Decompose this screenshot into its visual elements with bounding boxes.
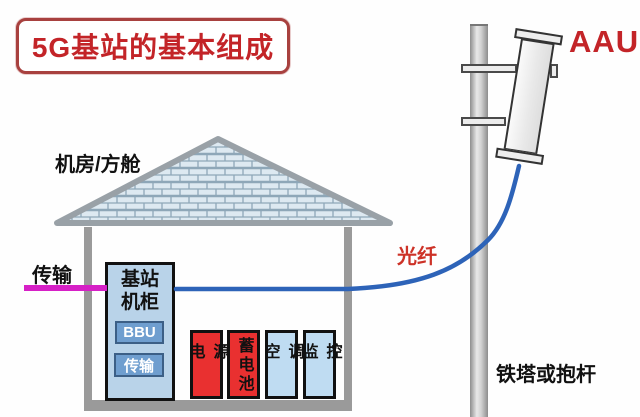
bbu-module: BBU: [115, 321, 164, 344]
power-label: 电源: [183, 333, 231, 396]
transmission-module: 传输: [114, 353, 164, 377]
air-conditioner-box: 空调: [265, 330, 298, 399]
monitoring-box: 监控: [303, 330, 336, 399]
aau-label: AAU: [569, 24, 639, 60]
battery-label: 蓄电池: [232, 333, 256, 396]
bbu-label: BBU: [123, 324, 156, 341]
house-wall-left: [84, 227, 92, 411]
aau-body: [503, 38, 554, 155]
cabinet-name: 基站机柜: [117, 268, 163, 314]
diagram-canvas: 基站机柜 BBU 传输 电源 蓄电池 空调 监控 5G基站的基本组成 机房/方舱: [0, 0, 640, 417]
transmission-module-label: 传输: [124, 355, 154, 376]
monitoring-label: 监控: [296, 333, 344, 396]
base-station-cabinet: 基站机柜 BBU 传输: [105, 262, 175, 401]
house-wall-right: [344, 227, 352, 411]
transmission-label: 传输: [32, 259, 72, 288]
power-box: 电源: [190, 330, 223, 399]
battery-box: 蓄电池: [227, 330, 260, 399]
aau-unit: [495, 28, 563, 166]
tower-label: 铁塔或抱杆: [496, 358, 596, 387]
equipment-room-label: 机房/方舱: [55, 148, 141, 177]
tower-pole: [470, 24, 488, 417]
page-title: 5G基站的基本组成: [32, 26, 274, 66]
title-box: 5G基站的基本组成: [16, 18, 290, 74]
fiber-label: 光纤: [397, 240, 437, 269]
house-floor: [84, 400, 352, 411]
